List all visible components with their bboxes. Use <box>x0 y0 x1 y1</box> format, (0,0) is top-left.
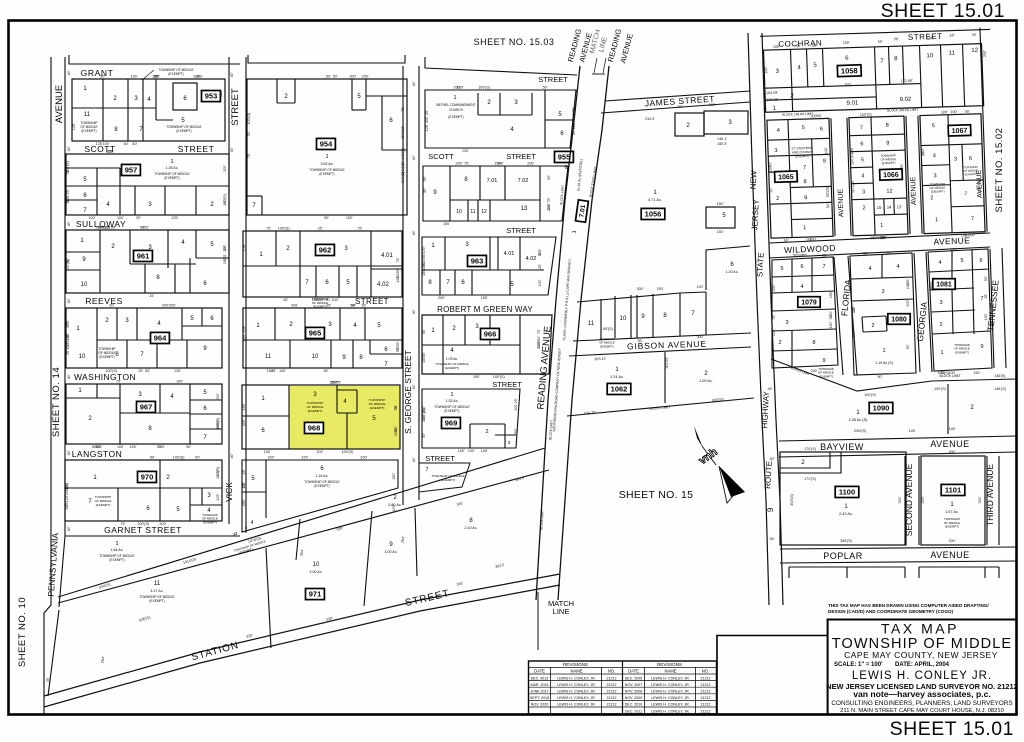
svg-text:50': 50' <box>100 75 105 79</box>
svg-text:150': 150' <box>768 165 772 172</box>
svg-text:125': 125' <box>142 226 149 230</box>
svg-text:40': 40' <box>230 453 234 458</box>
svg-text:125': 125' <box>174 369 181 373</box>
svg-text:STREET: STREET <box>178 144 215 154</box>
svg-text:6: 6 <box>820 127 823 133</box>
svg-text:125': 125' <box>243 244 247 251</box>
svg-text:1.33 Ac.: 1.33 Ac. <box>446 399 459 403</box>
svg-text:50': 50' <box>829 314 833 319</box>
svg-text:40': 40' <box>230 147 234 152</box>
svg-text:7: 7 <box>860 125 863 131</box>
svg-text:100': 100' <box>824 147 828 154</box>
svg-text:75': 75' <box>396 257 400 262</box>
svg-text:100': 100' <box>927 36 934 40</box>
svg-text:125': 125' <box>850 147 854 154</box>
svg-text:100': 100' <box>264 450 271 454</box>
svg-text:AVENUE: AVENUE <box>933 235 970 247</box>
svg-text:4.01: 4.01 <box>381 253 393 259</box>
svg-text:REEVES: REEVES <box>85 296 123 306</box>
svg-text:SCALE: 1" = 100': SCALE: 1" = 100' <box>834 662 883 668</box>
svg-text:25': 25' <box>104 226 109 230</box>
svg-text:7: 7 <box>971 216 974 222</box>
svg-text:CHURCH: CHURCH <box>449 108 464 112</box>
svg-text:2: 2 <box>485 429 488 435</box>
svg-text:1: 1 <box>325 154 328 160</box>
svg-text:40': 40' <box>768 387 773 391</box>
svg-text:150': 150' <box>843 41 850 45</box>
svg-text:50': 50' <box>894 37 899 41</box>
svg-text:125': 125' <box>242 482 246 489</box>
svg-text:21212: 21212 <box>607 690 617 694</box>
svg-text:1.19 Ac.(S): 1.19 Ac.(S) <box>875 361 893 365</box>
svg-text:53N'(S): 53N'(S) <box>854 429 866 433</box>
svg-text:50': 50' <box>132 142 137 146</box>
svg-text:TAX MAP: TAX MAP <box>881 621 959 637</box>
svg-text:150': 150' <box>973 371 980 375</box>
svg-text:THIRD AVENUE: THIRD AVENUE <box>985 464 995 527</box>
svg-text:50': 50' <box>422 433 426 438</box>
svg-text:AVENUE: AVENUE <box>976 169 984 198</box>
svg-text:LEWIS H. CONLEY, JR.: LEWIS H. CONLEY, JR. <box>651 696 689 700</box>
svg-text:7.01: 7.01 <box>487 178 498 184</box>
svg-text:200': 200' <box>514 404 518 411</box>
svg-text:1: 1 <box>170 159 173 165</box>
svg-text:9.02: 9.02 <box>899 97 912 103</box>
svg-text:172'(S): 172'(S) <box>804 477 816 481</box>
svg-text:200': 200' <box>949 539 956 543</box>
svg-text:75': 75' <box>66 320 70 325</box>
svg-text:125': 125' <box>171 216 178 220</box>
svg-text:100'(S): 100'(S) <box>850 153 854 165</box>
svg-text:100': 100' <box>88 216 95 220</box>
svg-text:6: 6 <box>979 258 982 264</box>
svg-text:163.55': 163.55' <box>665 357 669 369</box>
svg-text:100': 100' <box>852 331 856 338</box>
svg-text:150': 150' <box>346 216 353 220</box>
svg-text:(EXEMPT): (EXEMPT) <box>945 525 959 529</box>
svg-text:21212: 21212 <box>607 703 617 707</box>
svg-text:WASHINGTON: WASHINGTON <box>74 372 136 382</box>
svg-text:25': 25' <box>822 254 827 258</box>
svg-text:(EXEMPT): (EXEMPT) <box>99 355 114 359</box>
svg-text:967: 967 <box>140 403 153 412</box>
svg-text:1.57 Ac.: 1.57 Ac. <box>945 510 959 514</box>
svg-text:5: 5 <box>780 266 783 272</box>
svg-text:100': 100' <box>176 380 183 384</box>
svg-text:STREET: STREET <box>908 32 943 42</box>
svg-text:4: 4 <box>933 153 936 159</box>
svg-text:150': 150' <box>829 291 833 298</box>
svg-text:75': 75' <box>401 160 405 165</box>
svg-text:25': 25' <box>138 369 143 373</box>
svg-text:25': 25' <box>66 333 70 338</box>
svg-text:50': 50' <box>863 252 868 256</box>
svg-text:150': 150' <box>764 66 768 73</box>
svg-text:200': 200' <box>268 456 275 460</box>
svg-text:100'(S): 100'(S) <box>864 393 876 397</box>
svg-text:955: 955 <box>558 153 571 162</box>
svg-text:40': 40' <box>412 309 416 314</box>
svg-text:4: 4 <box>938 260 941 266</box>
svg-text:21212: 21212 <box>607 696 617 700</box>
svg-text:40': 40' <box>67 146 71 151</box>
svg-text:25': 25' <box>514 398 518 403</box>
svg-text:LEWIS H. CONLEY, JR.: LEWIS H. CONLEY, JR. <box>557 696 595 700</box>
svg-text:1056: 1056 <box>645 210 662 219</box>
svg-text:100': 100' <box>773 45 780 49</box>
svg-text:4: 4 <box>861 173 864 179</box>
svg-text:100'(S): 100'(S) <box>278 227 290 231</box>
svg-text:STREET: STREET <box>506 152 536 161</box>
svg-text:125': 125' <box>851 180 855 187</box>
svg-text:150': 150' <box>422 415 426 422</box>
svg-text:50': 50' <box>423 188 427 193</box>
svg-text:40': 40' <box>230 72 234 77</box>
svg-text:25': 25' <box>326 304 331 308</box>
svg-text:(EXEMPT): (EXEMPT) <box>109 558 124 562</box>
svg-text:100'(S): 100'(S) <box>493 375 505 379</box>
svg-text:AVENUE: AVENUE <box>930 550 969 560</box>
svg-text:1081: 1081 <box>936 282 952 289</box>
svg-text:SHEET 15.01: SHEET 15.01 <box>881 0 1005 22</box>
svg-text:NOV. 2007: NOV. 2007 <box>625 683 642 687</box>
svg-text:3: 3 <box>954 157 957 163</box>
svg-text:(EXEMPT): (EXEMPT) <box>955 350 969 354</box>
svg-text:5: 5 <box>802 125 805 131</box>
svg-text:25': 25' <box>318 227 323 231</box>
svg-text:(EXEMPT): (EXEMPT) <box>448 115 463 119</box>
svg-text:8: 8 <box>886 123 889 129</box>
svg-text:200': 200' <box>242 419 246 426</box>
svg-text:200': 200' <box>811 369 818 373</box>
svg-text:3: 3 <box>862 189 865 195</box>
svg-text:100': 100' <box>95 445 102 449</box>
svg-text:SHEET NO. 14: SHEET NO. 14 <box>51 367 62 437</box>
svg-text:2.26 Ac.(S): 2.26 Ac.(S) <box>849 418 869 422</box>
svg-text:STREET: STREET <box>538 75 568 84</box>
svg-text:7: 7 <box>425 467 428 473</box>
svg-text:6: 6 <box>800 264 803 270</box>
svg-text:200': 200' <box>159 522 166 526</box>
svg-text:200': 200' <box>921 496 925 503</box>
svg-text:8: 8 <box>812 340 815 346</box>
svg-text:REVISIONS: REVISIONS <box>563 662 588 667</box>
svg-text:125': 125' <box>462 149 469 153</box>
svg-text:2.10 Ac.: 2.10 Ac. <box>465 526 478 530</box>
svg-text:50': 50' <box>826 203 830 208</box>
svg-text:AVENUE: AVENUE <box>837 188 845 217</box>
svg-text:50': 50' <box>802 254 807 258</box>
svg-text:ROBERT M GREEN WAY: ROBERT M GREEN WAY <box>437 305 533 314</box>
svg-text:300': 300' <box>978 496 982 503</box>
svg-text:125': 125' <box>900 164 904 171</box>
svg-text:1066: 1066 <box>883 172 899 179</box>
svg-text:368'(S): 368'(S) <box>840 539 852 543</box>
svg-text:SEPT. 2018: SEPT. 2018 <box>530 696 549 700</box>
svg-text:9: 9 <box>804 195 807 201</box>
svg-text:POPLAR: POPLAR <box>823 551 863 561</box>
svg-text:STREET: STREET <box>425 454 455 463</box>
svg-text:100'(S): 100'(S) <box>934 387 946 391</box>
svg-text:75': 75' <box>120 522 125 526</box>
svg-text:1.09 Ac.: 1.09 Ac. <box>699 379 713 383</box>
svg-text:GARNET STREET: GARNET STREET <box>104 525 182 535</box>
svg-text:150': 150' <box>107 150 114 154</box>
svg-text:75': 75' <box>157 445 162 449</box>
svg-text:50': 50' <box>145 369 150 373</box>
svg-text:50': 50' <box>362 304 367 308</box>
svg-text:10: 10 <box>620 316 627 322</box>
svg-text:75': 75' <box>464 162 469 166</box>
svg-text:150': 150' <box>717 230 724 234</box>
svg-text:DEC. 2011: DEC. 2011 <box>625 709 642 713</box>
svg-text:(EXEMPT): (EXEMPT) <box>149 599 164 603</box>
svg-text:2: 2 <box>862 205 865 211</box>
svg-text:2.80 Ac.: 2.80 Ac. <box>388 503 402 507</box>
svg-text:GRANT: GRANT <box>81 68 114 78</box>
svg-text:136.82': 136.82' <box>766 98 778 102</box>
svg-text:DATE: DATE <box>534 669 545 674</box>
svg-text:40': 40' <box>67 450 71 455</box>
svg-text:(EXEMPT): (EXEMPT) <box>308 409 323 413</box>
svg-text:50': 50' <box>324 216 329 220</box>
svg-text:75': 75' <box>394 405 398 410</box>
svg-text:(EXEMPT): (EXEMPT) <box>445 366 459 370</box>
svg-text:STATE: STATE <box>755 252 765 277</box>
svg-text:200': 200' <box>983 50 987 57</box>
svg-text:50': 50' <box>950 33 955 37</box>
svg-text:LEWIS H. CONLEY, JR.: LEWIS H. CONLEY, JR. <box>557 690 595 694</box>
svg-text:150': 150' <box>242 403 246 410</box>
svg-text:40': 40' <box>67 221 71 226</box>
svg-text:125': 125' <box>772 329 776 336</box>
svg-text:969: 969 <box>445 419 458 428</box>
svg-text:4.02: 4.02 <box>377 282 389 288</box>
svg-text:LEWIS H. CONLEY JR.: LEWIS H. CONLEY JR. <box>852 670 992 682</box>
svg-text:100': 100' <box>331 298 338 302</box>
svg-text:150': 150' <box>392 473 396 480</box>
svg-text:1: 1 <box>940 350 943 356</box>
svg-text:100': 100' <box>538 279 542 286</box>
svg-text:10: 10 <box>926 53 934 59</box>
svg-text:9: 9 <box>980 344 983 350</box>
svg-text:300': 300' <box>898 496 902 503</box>
svg-text:100': 100' <box>950 110 957 114</box>
svg-text:9.01: 9.01 <box>847 100 860 106</box>
svg-text:75': 75' <box>538 252 542 257</box>
svg-text:50': 50' <box>984 276 988 281</box>
svg-text:JERSEY: JERSEY <box>750 198 761 230</box>
svg-text:13: 13 <box>521 206 528 212</box>
svg-text:65'(S): 65'(S) <box>603 327 613 331</box>
svg-text:957: 957 <box>125 166 138 175</box>
svg-text:25': 25' <box>271 369 276 373</box>
svg-text:50': 50' <box>422 329 426 334</box>
svg-text:1: 1 <box>572 230 578 234</box>
svg-text:50': 50' <box>796 44 801 48</box>
svg-text:50': 50' <box>543 86 548 90</box>
svg-text:4.27 Ac.: 4.27 Ac. <box>151 589 164 593</box>
svg-text:50': 50' <box>109 304 114 308</box>
svg-text:75': 75' <box>547 197 551 202</box>
svg-text:300': 300' <box>637 287 644 291</box>
svg-text:100': 100' <box>941 110 948 114</box>
svg-text:40': 40' <box>412 230 416 235</box>
svg-text:6: 6 <box>564 165 567 171</box>
svg-text:150': 150' <box>422 269 426 276</box>
svg-text:STREET: STREET <box>355 297 389 306</box>
svg-text:100': 100' <box>316 450 323 454</box>
svg-text:50': 50' <box>333 75 338 79</box>
svg-text:50': 50' <box>906 344 910 349</box>
svg-text:968: 968 <box>308 424 321 433</box>
svg-text:3: 3 <box>939 300 942 306</box>
svg-text:AVENUE: AVENUE <box>910 176 918 205</box>
svg-text:50': 50' <box>283 298 288 302</box>
svg-text:40': 40' <box>67 526 71 531</box>
svg-text:STREET: STREET <box>230 88 241 126</box>
svg-text:NOV. 2009: NOV. 2009 <box>625 696 642 700</box>
svg-text:194.59': 194.59' <box>766 91 778 95</box>
svg-text:7: 7 <box>822 264 825 270</box>
svg-text:4.01: 4.01 <box>504 251 515 257</box>
svg-text:1: 1 <box>882 348 885 354</box>
svg-text:(EXEMPT): (EXEMPT) <box>370 406 385 410</box>
svg-text:1: 1 <box>803 225 806 231</box>
svg-text:1: 1 <box>450 392 453 398</box>
svg-text:125': 125' <box>538 264 542 271</box>
svg-text:100'(S): 100'(S) <box>247 113 251 125</box>
svg-text:50': 50' <box>965 110 970 114</box>
svg-text:(EXEMPT): (EXEMPT) <box>314 484 329 488</box>
svg-text:150': 150' <box>481 296 488 300</box>
svg-text:5: 5 <box>960 258 963 264</box>
svg-text:NO.: NO. <box>702 669 709 674</box>
svg-text:125': 125' <box>825 186 829 193</box>
svg-text:3.63 Ac.: 3.63 Ac. <box>321 162 334 166</box>
svg-text:(EXEMPT): (EXEMPT) <box>931 189 945 193</box>
svg-text:100': 100' <box>481 449 488 453</box>
svg-text:200': 200' <box>514 428 518 435</box>
svg-text:50': 50' <box>124 142 129 146</box>
svg-text:150': 150' <box>473 375 480 379</box>
svg-text:150': 150' <box>65 483 69 490</box>
svg-text:(EXEMPT): (EXEMPT) <box>444 409 459 413</box>
svg-text:DEC. 2010: DEC. 2010 <box>625 703 643 707</box>
svg-text:50': 50' <box>770 457 775 461</box>
svg-text:21212: 21212 <box>701 696 711 700</box>
svg-text:150': 150' <box>709 103 716 107</box>
svg-text:4: 4 <box>896 264 899 270</box>
svg-text:15: 15 <box>877 205 883 210</box>
svg-text:25': 25' <box>66 189 70 194</box>
svg-text:S. GEORGE STREET: S. GEORGE STREET <box>403 350 413 434</box>
svg-text:BLOCK LIMIT: BLOCK LIMIT <box>939 374 960 378</box>
svg-text:75': 75' <box>116 380 121 384</box>
svg-text:9: 9 <box>822 358 825 364</box>
svg-text:1.64 Ac.: 1.64 Ac. <box>111 548 124 552</box>
svg-text:200': 200' <box>162 304 169 308</box>
svg-text:50': 50' <box>812 44 817 48</box>
svg-text:200': 200' <box>362 75 369 79</box>
svg-text:11: 11 <box>470 209 475 215</box>
svg-text:LEWIS H. CONLEY, JR.: LEWIS H. CONLEY, JR. <box>557 703 595 707</box>
svg-text:100': 100' <box>657 287 664 291</box>
svg-text:100': 100' <box>219 90 223 97</box>
svg-text:25': 25' <box>149 294 154 298</box>
svg-text:21212: 21212 <box>607 676 617 680</box>
svg-text:125': 125' <box>425 124 429 131</box>
svg-text:50': 50' <box>423 176 427 181</box>
svg-text:11: 11 <box>949 50 956 56</box>
svg-text:10: 10 <box>312 354 319 360</box>
svg-text:50': 50' <box>930 285 934 290</box>
svg-text:125': 125' <box>65 495 69 502</box>
svg-text:125': 125' <box>72 123 76 130</box>
svg-text:1058: 1058 <box>841 66 858 75</box>
svg-text:LEWIS H. CONLEY, JR.: LEWIS H. CONLEY, JR. <box>651 676 689 680</box>
svg-text:40': 40' <box>67 70 71 75</box>
svg-text:11: 11 <box>265 354 272 360</box>
svg-text:2.42 Ac.: 2.42 Ac. <box>839 512 853 516</box>
svg-text:50': 50' <box>223 199 227 204</box>
svg-text:75': 75' <box>247 153 251 158</box>
svg-text:11: 11 <box>84 112 91 118</box>
svg-text:200': 200' <box>394 429 398 436</box>
svg-text:(EXEMPT): (EXEMPT) <box>176 129 191 133</box>
svg-text:100': 100' <box>243 334 247 341</box>
svg-text:100': 100' <box>697 285 704 289</box>
svg-text:LANGSTON: LANGSTON <box>72 449 123 459</box>
svg-text:953: 953 <box>205 92 218 101</box>
svg-text:25': 25' <box>852 307 856 312</box>
svg-text:(EXEMPT): (EXEMPT) <box>81 129 96 133</box>
svg-text:25': 25' <box>247 131 251 136</box>
svg-text:1080: 1080 <box>891 317 907 324</box>
svg-text:2: 2 <box>871 323 874 329</box>
svg-text:6: 6 <box>969 156 972 162</box>
svg-text:40': 40' <box>412 81 416 86</box>
svg-text:2.00 Ac.: 2.00 Ac. <box>310 570 323 574</box>
svg-text:200': 200' <box>223 165 227 172</box>
svg-text:200': 200' <box>169 304 176 308</box>
svg-text:200': 200' <box>885 252 892 256</box>
svg-text:CAPE MAY COUNTY, NEW JERSE: CAPE MAY COUNTY, NEW JERSEY <box>844 650 998 660</box>
svg-text:3.71 Ac.: 3.71 Ac. <box>648 198 662 202</box>
svg-text:150.5': 150.5' <box>717 142 727 146</box>
svg-text:50': 50' <box>186 445 191 449</box>
svg-text:4: 4 <box>800 284 803 290</box>
svg-text:1: 1 <box>115 541 118 547</box>
svg-text:303'(S): 303'(S) <box>790 494 794 506</box>
svg-text:2: 2 <box>778 340 781 346</box>
svg-text:NOV. 2008: NOV. 2008 <box>625 690 642 694</box>
svg-text:1: 1 <box>880 223 883 229</box>
svg-text:970: 970 <box>141 473 154 482</box>
svg-text:DEC. 2005: DEC. 2005 <box>625 676 643 680</box>
svg-text:200': 200' <box>223 244 227 251</box>
svg-text:NO.: NO. <box>608 669 615 674</box>
svg-text:13: 13 <box>897 204 903 209</box>
svg-text:(EXEMPT): (EXEMPT) <box>795 154 809 158</box>
svg-text:5: 5 <box>932 123 935 129</box>
svg-text:40': 40' <box>412 457 416 462</box>
svg-text:1100: 1100 <box>839 488 855 497</box>
svg-text:ROUTE: ROUTE <box>763 461 773 489</box>
svg-text:(EXEMPT): (EXEMPT) <box>203 520 217 524</box>
svg-text:100': 100' <box>130 445 137 449</box>
svg-text:NEW: NEW <box>749 170 759 190</box>
